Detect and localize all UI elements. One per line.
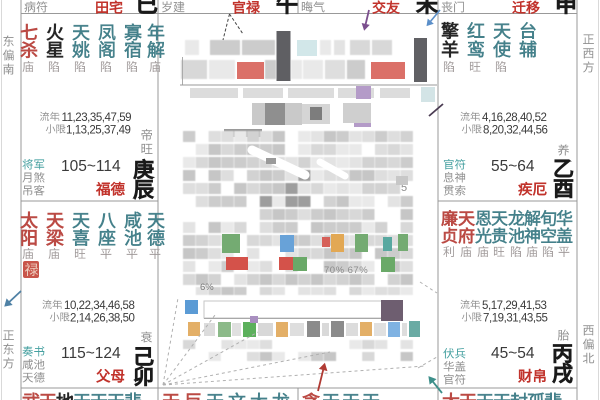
svg-text:10,22,34,46,58: 10,22,34,46,58	[64, 300, 134, 312]
svg-text:5,17,29,41,53: 5,17,29,41,53	[482, 300, 547, 312]
svg-text:2,14,26,38,50: 2,14,26,38,50	[70, 312, 135, 324]
svg-text:105~114: 105~114	[61, 158, 121, 175]
svg-text:1,13,25,37,49: 1,13,25,37,49	[66, 124, 131, 136]
svg-text::: :	[479, 312, 482, 324]
svg-text::: :	[478, 112, 481, 124]
svg-text:70% 67%: 70% 67%	[324, 265, 368, 276]
svg-text:45~54: 45~54	[491, 345, 535, 362]
svg-text:115~124: 115~124	[61, 345, 121, 362]
svg-text::: :	[478, 300, 481, 312]
svg-text:11,23,35,47,59: 11,23,35,47,59	[62, 112, 132, 124]
svg-text::: :	[57, 112, 60, 124]
svg-text:4,16,28,40,52: 4,16,28,40,52	[482, 112, 547, 124]
svg-text::: :	[479, 124, 482, 136]
svg-text:7,19,31,43,55: 7,19,31,43,55	[483, 312, 548, 324]
svg-text:6%: 6%	[200, 282, 214, 293]
svg-text::: :	[60, 300, 63, 312]
svg-text:55~64: 55~64	[491, 158, 535, 175]
svg-text:8,20,32,44,56: 8,20,32,44,56	[483, 124, 548, 136]
